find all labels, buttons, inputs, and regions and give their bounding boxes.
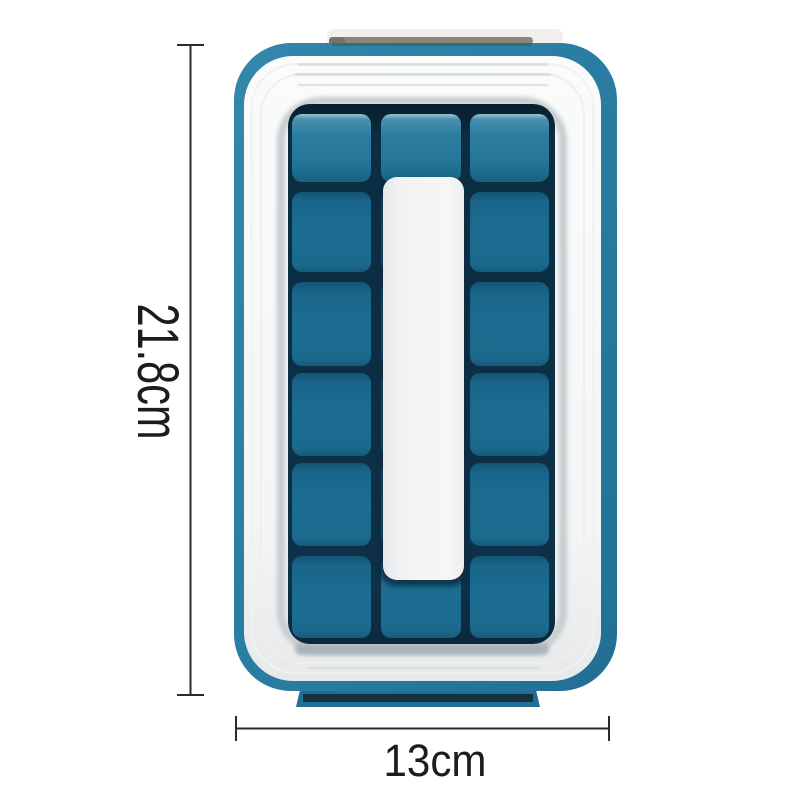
svg-text:21.8cm: 21.8cm (125, 304, 190, 440)
svg-text:13cm: 13cm (384, 735, 487, 786)
